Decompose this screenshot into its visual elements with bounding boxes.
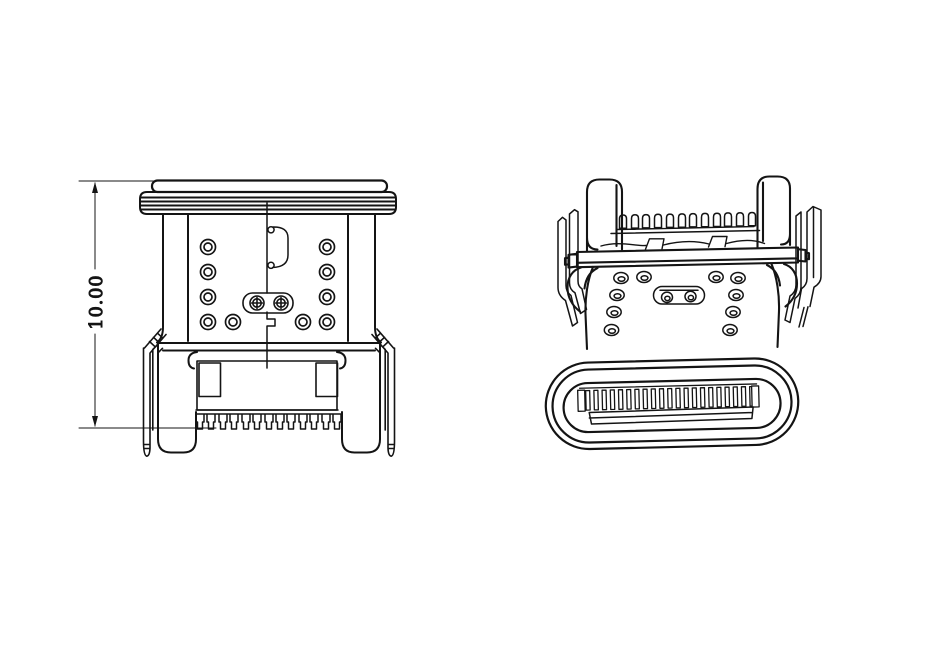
cap-top-bar: [152, 181, 387, 193]
connector-technical-drawing: 10.00: [0, 0, 935, 649]
front-view: [140, 181, 396, 457]
solder-pin-comb: [196, 410, 341, 429]
shell-face-outline: [568, 264, 798, 349]
isometric-view: [545, 177, 821, 451]
dimension-value-label: 10.00: [87, 274, 107, 329]
retention-tab-left: [587, 180, 622, 252]
mounting-leg-right: [372, 329, 395, 456]
rivet-plate: [243, 293, 293, 313]
drawing-canvas: 10.00: [0, 0, 935, 649]
receptacle-assembly: [545, 357, 800, 450]
central-slot: [654, 287, 705, 305]
cap-molding: [140, 192, 396, 214]
base-outline: [158, 343, 380, 453]
top-contact-comb: [611, 213, 760, 234]
mid-plate-detail: [601, 237, 765, 250]
retention-tab-right: [758, 177, 791, 248]
mounting-leg-left: [144, 329, 167, 456]
